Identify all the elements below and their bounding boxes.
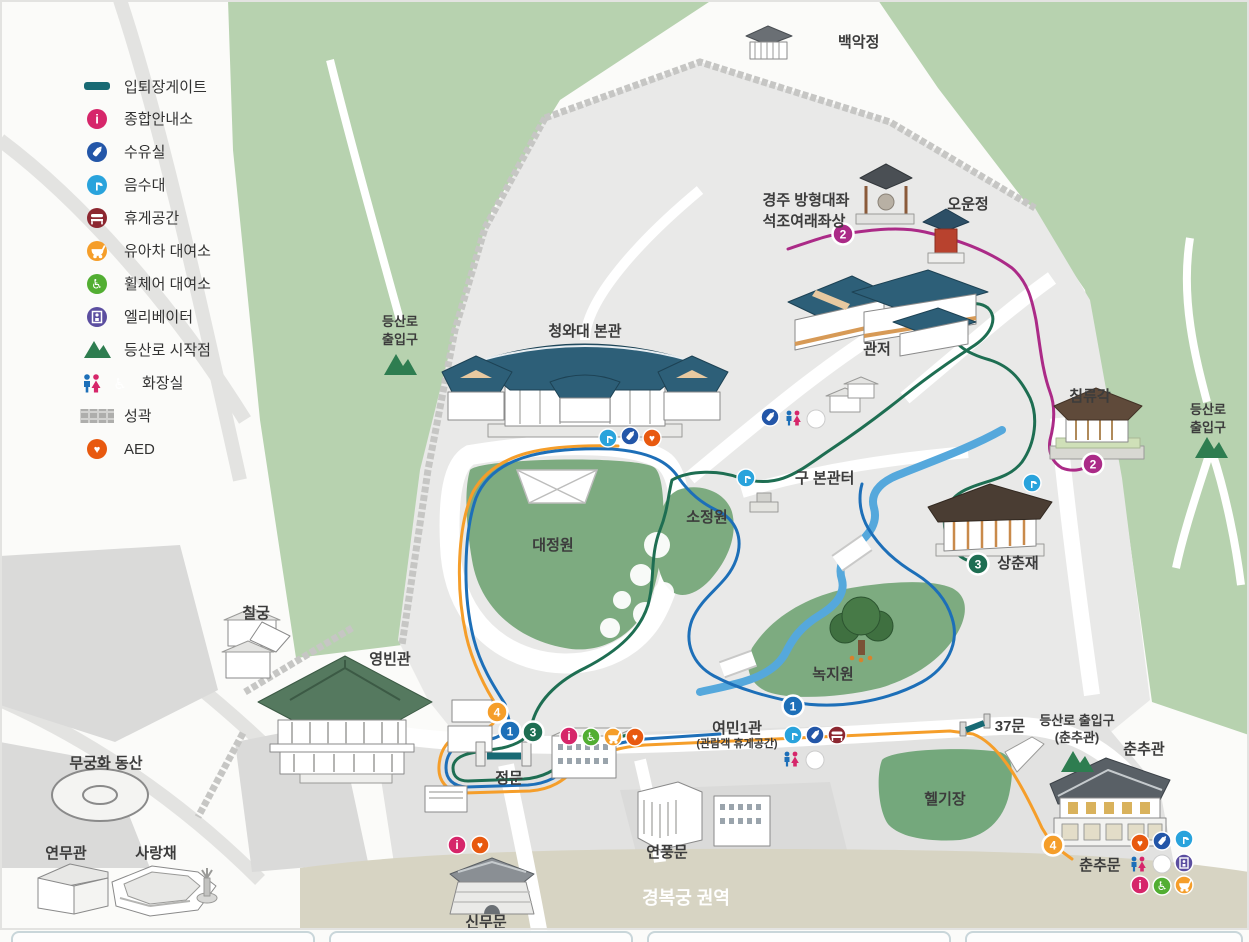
legend-label-rest: 휴게공간: [124, 210, 179, 227]
svg-text:i: i: [1138, 878, 1141, 892]
svg-text:3: 3: [530, 726, 537, 740]
legend-label-elevator: 엘리베이터: [124, 309, 193, 326]
entry-exit-gate-icon: [84, 82, 110, 90]
label-trail-right-1: 등산로: [1190, 402, 1226, 417]
svg-text:♿: ♿: [1157, 879, 1168, 893]
accessible-toilet-icon: ♿: [1153, 855, 1171, 873]
label-gyeongju-2: 석조여래좌상: [763, 212, 846, 230]
svg-text:2: 2: [1090, 458, 1097, 472]
label-bongwan: 청와대 본관: [548, 322, 621, 340]
label-trail-chunchu-sub: (춘추관): [1055, 730, 1100, 745]
svg-text:i: i: [95, 112, 99, 127]
bottom-cards[interactable]: [12, 932, 1242, 942]
svg-text:♥: ♥: [94, 444, 101, 456]
wheelchair-rental-icon: ♿: [1153, 877, 1171, 895]
legend-label-toilet: 화장실: [142, 375, 183, 392]
legend-label-stroller: 유아차 대여소: [124, 243, 211, 260]
stroller-rental-icon: [87, 241, 107, 261]
bottom-card-1[interactable]: [12, 932, 314, 942]
svg-text:3: 3: [975, 558, 982, 572]
svg-text:i: i: [455, 838, 458, 852]
water-fountain-icon: [599, 429, 617, 447]
label-sangchunjae: 상춘재: [997, 555, 1038, 572]
course-badge-2: 2: [1083, 454, 1104, 475]
course-badge-3: 3: [968, 554, 989, 575]
accessible-toilet-icon: ♿: [806, 751, 824, 769]
svg-text:♿: ♿: [1157, 857, 1168, 871]
course-badge-1: 1: [500, 721, 521, 742]
label-helipad: 헬기장: [924, 790, 966, 808]
svg-text:♥: ♥: [649, 434, 655, 445]
water-fountain-icon: [784, 726, 802, 744]
svg-text:♿: ♿: [810, 753, 821, 767]
svg-text:♥: ♥: [1137, 839, 1143, 850]
bottom-card-2[interactable]: [330, 932, 632, 942]
svg-text:4: 4: [494, 706, 501, 720]
rest-area-icon: [87, 208, 107, 228]
accessible-toilet-icon: ♿: [113, 376, 126, 393]
legend-label-water: 음수대: [124, 177, 165, 194]
label-yeonpungmun: 연풍문: [646, 844, 688, 861]
legend-label-aed: AED: [124, 441, 155, 458]
svg-text:1: 1: [790, 700, 797, 714]
svg-text:4: 4: [1050, 839, 1057, 853]
info-center-icon: i: [1131, 876, 1149, 894]
course-badge-4: 4: [487, 702, 508, 723]
legend-label-gate: 입퇴장게이트: [124, 79, 207, 96]
label-yeomin1: 여민1관: [712, 720, 762, 737]
aed-icon: ♥: [1131, 834, 1149, 852]
svg-text:i: i: [567, 729, 570, 743]
aed-icon: ♥: [643, 429, 661, 447]
info-center-icon: i: [87, 109, 107, 129]
nursing-room-icon: [806, 726, 824, 744]
wheelchair-rental-icon: ♿: [87, 274, 107, 294]
nursing-room-icon: [621, 427, 639, 445]
daejeongwon-stage: [517, 470, 597, 503]
label-chimnyugak: 침류각: [1069, 387, 1111, 405]
aed-icon: ♥: [471, 836, 489, 854]
label-trail-left-2: 출입구: [382, 332, 418, 347]
label-gyeongbokgung: 경복궁 권역: [642, 888, 730, 908]
info-center-icon: i: [560, 727, 578, 745]
label-sarangchae: 사랑채: [135, 844, 176, 862]
rest-area-icon: [828, 726, 846, 744]
stroller-rental-icon: [1175, 876, 1193, 894]
svg-text:♿: ♿: [811, 412, 822, 426]
course-badge-3: 3: [523, 722, 544, 743]
aed-icon: ♥: [626, 728, 644, 746]
nursing-room-icon: [1153, 832, 1171, 850]
label-baegakjeong: 백악정: [838, 33, 879, 51]
svg-text:♿: ♿: [91, 277, 103, 292]
label-mun37: 37문: [995, 718, 1026, 735]
map-canvas: ♥ ♿ i ♿: [0, 0, 1249, 942]
course-badge-4: 4: [1043, 835, 1064, 856]
svg-text:♥: ♥: [632, 733, 638, 744]
water-fountain-icon: [1175, 830, 1193, 848]
bottom-card-3[interactable]: [648, 932, 950, 942]
label-chunchumun: 춘추문: [1079, 857, 1121, 874]
elevator-icon: [87, 307, 107, 327]
label-ounjeong: 오운정: [947, 195, 988, 213]
svg-text:♿: ♿: [586, 730, 597, 744]
bottom-card-4[interactable]: [966, 932, 1242, 942]
label-trail-right-2: 출입구: [1190, 420, 1226, 435]
label-chilgung: 칠궁: [242, 605, 270, 622]
fortress-wall-icon: [80, 409, 114, 423]
label-jeongmun: 정문: [495, 769, 523, 787]
accessible-toilet-icon: ♿: [807, 410, 825, 428]
label-gwanjeo: 관저: [863, 341, 891, 358]
label-yeonmugwan: 연무관: [45, 845, 87, 862]
legend-label-wheelchair: 휠체어 대여소: [124, 276, 211, 293]
water-fountain-icon: [737, 469, 755, 487]
label-mugunghwa: 무궁화 동산: [69, 755, 142, 772]
label-daejeongwon: 대정원: [532, 536, 573, 554]
stroller-rental-icon: [604, 728, 622, 746]
label-yeongbingwan: 영빈관: [369, 650, 411, 668]
svg-text:1: 1: [507, 725, 514, 739]
water-fountain-icon: [87, 175, 107, 195]
svg-text:♥: ♥: [477, 841, 483, 852]
legend-label-nursing: 수유실: [124, 144, 165, 161]
nursing-room-icon: [761, 408, 779, 426]
wheelchair-rental-icon: ♿: [582, 728, 600, 746]
course-badge-1: 1: [783, 696, 804, 717]
label-gyeongju-1: 경주 방형대좌: [763, 191, 850, 209]
cheongwadae-map: ♥ ♿ i ♿: [0, 0, 1249, 942]
label-yeomin1-sub: (관람객 휴게공간): [696, 736, 778, 750]
legend-label-info: 종합안내소: [124, 111, 193, 128]
mugunghwa-hill: [52, 769, 148, 821]
label-chunchugwan: 춘추관: [1123, 741, 1165, 758]
label-gubongwanteo: 구 본관터: [795, 470, 854, 487]
water-fountain-icon: [1023, 474, 1041, 492]
label-trail-left-1: 등산로: [382, 314, 418, 329]
elevator-icon: [1175, 854, 1193, 872]
legend-label-wall: 성곽: [124, 408, 152, 425]
info-center-icon: i: [448, 836, 466, 854]
nursing-room-icon: [87, 142, 107, 162]
legend-label-trail: 등산로 시작점: [124, 342, 211, 359]
label-trail-chunchu: 등산로 출입구: [1039, 713, 1114, 728]
aed-icon: ♥: [87, 439, 107, 459]
label-nokjiwon: 녹지원: [812, 666, 853, 683]
label-sojeongwon: 소정원: [686, 508, 727, 526]
